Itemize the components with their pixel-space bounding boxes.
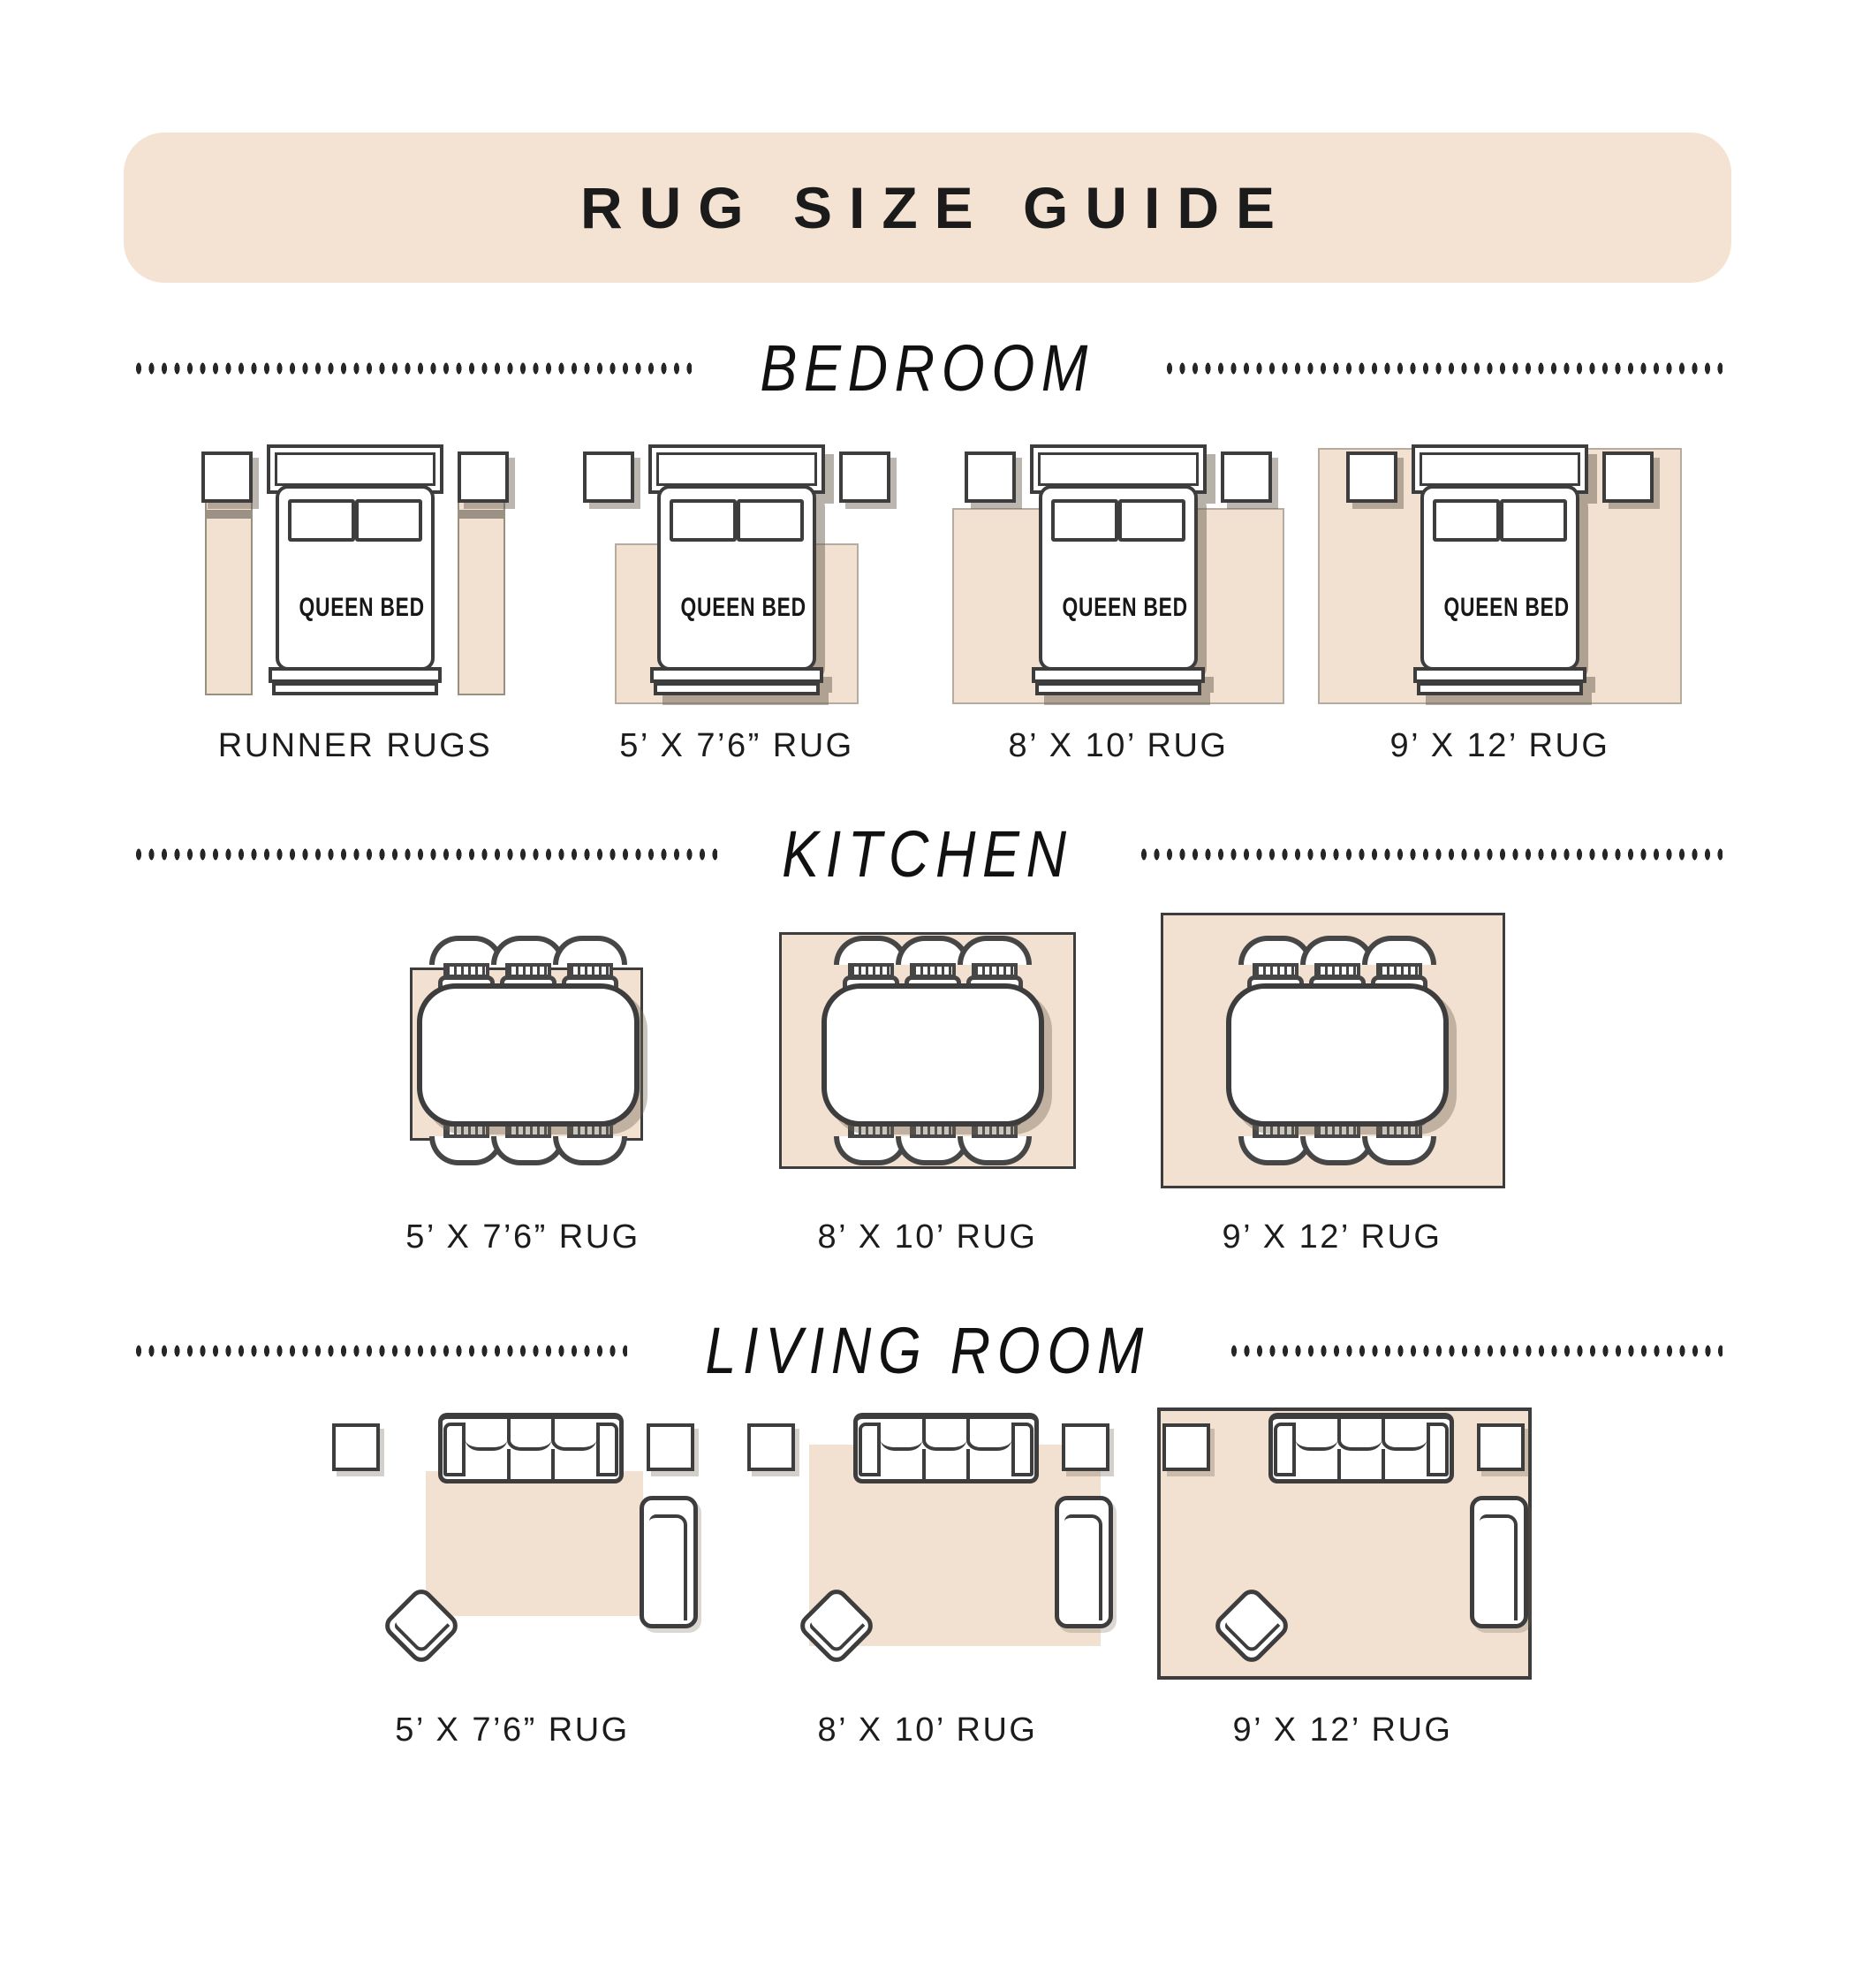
sofa-back-cushions [1296,1419,1427,1451]
dining-table [821,983,1044,1127]
nightstand-right [1221,451,1272,503]
dotted-divider-right [1228,1345,1722,1357]
rug-size-label: 8’ X 10’ RUG [1009,727,1229,765]
sofa-back-cushion [966,1419,1011,1451]
section-header-living-room: LIVING ROOM [132,1313,1722,1388]
nightstand-right [839,451,890,503]
sofa-back-cushion [466,1419,507,1451]
title-banner: RUG SIZE GUIDE [124,133,1731,283]
queen-bed: QUEEN BED [1030,444,1207,695]
pillow-left [1051,499,1118,542]
bedroom-row: QUEEN BED RUNNER RUGS QUEEN BED [0,439,1855,765]
side-table-right [1477,1423,1525,1471]
queen-bed-label: QUEEN BED [279,593,431,623]
side-table-left [747,1423,795,1471]
dining-table [1226,983,1449,1127]
sofa-seat-cushion [551,1449,596,1479]
living-diagram-5x76 [318,1397,707,1690]
sofa-seat-cushion [881,1449,922,1479]
nightstand-left [965,451,1016,503]
sofa-back-cushion [507,1419,552,1451]
kitchen-diagram-8x10 [733,904,1122,1197]
dotted-divider-right [1138,848,1722,861]
footboard-outer [269,667,442,683]
pillow-right [355,499,422,542]
footboard-inner [1417,682,1583,695]
page-title: RUG SIZE GUIDE [564,174,1291,241]
mattress: QUEEN BED [657,485,816,671]
pillow-left [670,499,737,542]
sofa-seat-cushion [922,1449,967,1479]
pillow-right [1118,499,1185,542]
sofa-back-cushion [1296,1419,1337,1451]
queen-bed-label: QUEEN BED [661,593,813,623]
footboard-outer [1413,667,1586,683]
sofa-back-cushions [881,1419,1011,1451]
kitchen-row: 5’ X 7’6” RUG 8’ X 10’ RUG 9’ X 12’ RUG [0,904,1855,1256]
side-table-right [647,1423,694,1471]
bedroom-diagram-8x10: QUEEN BED [933,439,1304,706]
sofa-back-cushion [551,1419,596,1451]
sofa-arm-right [1011,1423,1033,1476]
card-bedroom-5x76: QUEEN BED 5’ X 7’6” RUG [551,439,922,765]
footboard-outer [1032,667,1205,683]
sofa [1268,1413,1454,1483]
runner-rug-left [205,490,253,695]
chair-back [553,1136,627,1165]
rug-size-label: 5’ X 7’6” RUG [395,1711,630,1749]
runner-rug-right [458,490,505,695]
living-room-row: 5’ X 7’6” RUG 8’ X 10’ RUG [0,1397,1855,1749]
nightstand-left [201,451,253,503]
sofa-back-cushion [881,1419,922,1451]
pillow-left [1433,499,1500,542]
mattress: QUEEN BED [1039,485,1198,671]
kitchen-diagram-9x12 [1138,904,1526,1197]
chair-back [1362,936,1436,965]
nightstand-left [583,451,634,503]
sofa-back-cushion [922,1419,967,1451]
sofa-arm-right [596,1423,618,1476]
sofa-seat-cushion [466,1449,507,1479]
pillow-right [737,499,804,542]
card-bedroom-runner: QUEEN BED RUNNER RUGS [170,439,541,765]
pillow-left [288,499,355,542]
rug-size-label: 9’ X 12’ RUG [1390,727,1610,765]
queen-bed: QUEEN BED [267,444,443,695]
dotted-divider-right [1163,362,1722,375]
bedroom-diagram-5x76: QUEEN BED [551,439,922,706]
mattress: QUEEN BED [276,485,435,671]
side-table-right [1062,1423,1109,1471]
dining-table [417,983,640,1127]
bedroom-diagram-9x12: QUEEN BED [1314,439,1685,706]
chair-back [1362,1136,1436,1165]
queen-bed: QUEEN BED [648,444,825,695]
rug-size-label: 5’ X 7’6” RUG [619,727,854,765]
nightstand-left [1346,451,1397,503]
dotted-divider-left [132,362,692,375]
footboard-inner [1035,682,1201,695]
rug-size-label: 9’ X 12’ RUG [1223,1218,1442,1256]
pillow-right [1500,499,1567,542]
nightstand-right [1602,451,1654,503]
mattress: QUEEN BED [1420,485,1579,671]
living-diagram-8x10 [733,1397,1122,1690]
chaise-lounge [640,1496,698,1628]
queen-bed-label: QUEEN BED [1042,593,1194,623]
chaise-lounge [1055,1496,1113,1628]
sofa-seat-cushion [507,1449,552,1479]
section-title-bedroom: BEDROOM [761,330,1095,406]
footboard-outer [650,667,823,683]
card-kitchen-9x12: 9’ X 12’ RUG [1138,904,1526,1256]
rug-size-label: RUNNER RUGS [218,727,492,765]
card-living-9x12: 9’ X 12’ RUG [1148,1397,1537,1749]
card-bedroom-9x12: QUEEN BED 9’ X 12’ RUG [1314,439,1685,765]
rug-size-label: 8’ X 10’ RUG [818,1218,1038,1256]
rug-size-label: 9’ X 12’ RUG [1233,1711,1453,1749]
sofa [438,1413,624,1483]
sofa-seat-cushions [466,1449,596,1479]
chaise-lounge [1470,1496,1528,1628]
chair-back [553,936,627,965]
sofa-seat-cushions [881,1449,1011,1479]
side-table-left [332,1423,380,1471]
sofa-seat-cushion [1382,1449,1427,1479]
chair-back [958,1136,1032,1165]
dotted-divider-left [132,1345,627,1357]
sofa-back-cushion [1337,1419,1382,1451]
rug-size-label: 8’ X 10’ RUG [818,1711,1038,1749]
rug-5x76 [426,1471,643,1616]
section-header-kitchen: KITCHEN [132,816,1722,892]
sofa-arm-right [1427,1423,1449,1476]
sofa-arm-left [1274,1423,1296,1476]
rug-size-label: 5’ X 7’6” RUG [405,1218,640,1256]
footboard-inner [272,682,438,695]
sofa-seat-cushions [1296,1449,1427,1479]
footboard-inner [654,682,820,695]
card-living-5x76: 5’ X 7’6” RUG [318,1397,707,1749]
bedroom-diagram-runner: QUEEN BED [170,439,541,706]
card-kitchen-8x10: 8’ X 10’ RUG [733,904,1122,1256]
queen-bed: QUEEN BED [1412,444,1588,695]
queen-bed-label: QUEEN BED [1424,593,1576,623]
sofa-arm-left [443,1423,466,1476]
sofa-seat-cushion [1337,1449,1382,1479]
section-title-living-room: LIVING ROOM [705,1313,1150,1388]
sofa-seat-cushion [1296,1449,1337,1479]
kitchen-diagram-5x76 [329,904,717,1197]
nightstand-right [458,451,509,503]
sofa [853,1413,1039,1483]
chair-back [958,936,1032,965]
card-kitchen-5x76: 5’ X 7’6” RUG [329,904,717,1256]
section-title-kitchen: KITCHEN [782,816,1073,892]
section-header-bedroom: BEDROOM [132,330,1722,406]
card-living-8x10: 8’ X 10’ RUG [733,1397,1122,1749]
sofa-seat-cushion [966,1449,1011,1479]
sofa-back-cushions [466,1419,596,1451]
dotted-divider-left [132,848,717,861]
sofa-arm-left [859,1423,881,1476]
sofa-back-cushion [1382,1419,1427,1451]
living-diagram-9x12 [1148,1397,1537,1690]
card-bedroom-8x10: QUEEN BED 8’ X 10’ RUG [933,439,1304,765]
side-table-left [1162,1423,1210,1471]
